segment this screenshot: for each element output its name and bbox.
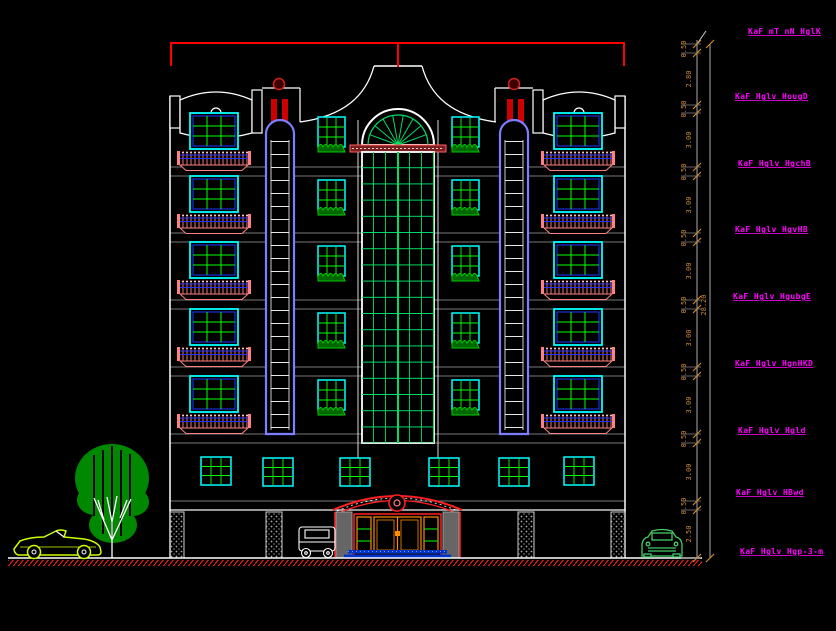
dim-segment-text: 3.00 bbox=[685, 330, 693, 347]
planter-window-column-right bbox=[452, 117, 479, 415]
dim-segment-text: 0.50 bbox=[680, 41, 688, 58]
level-label: KaF Hglv HBwd bbox=[736, 488, 804, 497]
dim-segment-text: 0.50 bbox=[680, 230, 688, 247]
ground-line bbox=[8, 558, 702, 566]
balcony-stack-right bbox=[541, 113, 615, 434]
cad-elevation-canvas: 0.50 2.80 0.50 3.00 0.50 3.00 0.50 3.00 … bbox=[0, 0, 836, 631]
curtain-wall bbox=[362, 152, 434, 443]
level-label: KaF Hglv HgchB bbox=[738, 159, 811, 168]
first-floor-window-row bbox=[201, 457, 594, 486]
car-right bbox=[642, 530, 682, 558]
dim-segment-text: 0.50 bbox=[680, 431, 688, 448]
level-label: KaF Hglv HgubgE bbox=[733, 292, 811, 301]
dim-segment-text: 3.00 bbox=[685, 197, 693, 214]
stair-strip-window-right bbox=[500, 120, 528, 434]
planter-window-column-left bbox=[318, 117, 345, 415]
canopy-emblem bbox=[389, 495, 405, 511]
level-labels: KaF mT nN HglK KaF Hglv HougD KaF Hglv H… bbox=[733, 27, 823, 556]
hatched-pier bbox=[170, 512, 184, 558]
door-knob bbox=[395, 531, 400, 536]
dim-segment-text: 2.80 bbox=[685, 71, 693, 88]
dim-segment-text: 3.00 bbox=[685, 263, 693, 280]
parapet-ornament-circle-right bbox=[509, 79, 520, 90]
balcony-stack-left bbox=[177, 113, 251, 434]
hatched-pier bbox=[518, 512, 534, 558]
car-left bbox=[14, 530, 101, 559]
parapet-ornament-circle-left bbox=[274, 79, 285, 90]
dim-segment-text: 3.00 bbox=[685, 132, 693, 149]
dim-segment-text: 0.50 bbox=[680, 498, 688, 515]
garage-car bbox=[299, 527, 335, 558]
level-label: KaF Hglv Hgp-3-m bbox=[740, 547, 823, 556]
dim-segment-text: 3.00 bbox=[685, 397, 693, 414]
ground-floor bbox=[170, 495, 625, 558]
dim-segment-text: 0.50 bbox=[680, 101, 688, 118]
level-label: KaF mT nN HglK bbox=[748, 27, 821, 36]
level-label: KaF Hglv HougD bbox=[735, 92, 808, 101]
hatched-pier bbox=[266, 512, 282, 558]
dim-segment-text: 0.50 bbox=[680, 297, 688, 314]
dim-segment-text: 2.50 bbox=[685, 526, 693, 543]
dim-segment-text: 3.00 bbox=[685, 464, 693, 481]
level-label: KaF Hglv Hgld bbox=[738, 426, 806, 435]
fan-window bbox=[362, 109, 434, 145]
level-label: KaF Hglv HgvHB bbox=[735, 225, 808, 234]
arch-cornice-band bbox=[350, 145, 446, 152]
dimension-string: 0.50 2.80 0.50 3.00 0.50 3.00 0.50 3.00 … bbox=[680, 31, 714, 562]
entrance-portal bbox=[335, 512, 460, 558]
dim-segment-text: 0.50 bbox=[680, 364, 688, 381]
stair-strip-window-left bbox=[266, 120, 294, 434]
elevation-drawing: 0.50 2.80 0.50 3.00 0.50 3.00 0.50 3.00 … bbox=[0, 0, 836, 631]
level-label: KaF Hglv HgnHKD bbox=[735, 359, 813, 368]
hatched-pier bbox=[611, 512, 625, 558]
dim-segment-text: 0.50 bbox=[680, 164, 688, 181]
overall-dim-text: 28.20 bbox=[700, 294, 708, 315]
